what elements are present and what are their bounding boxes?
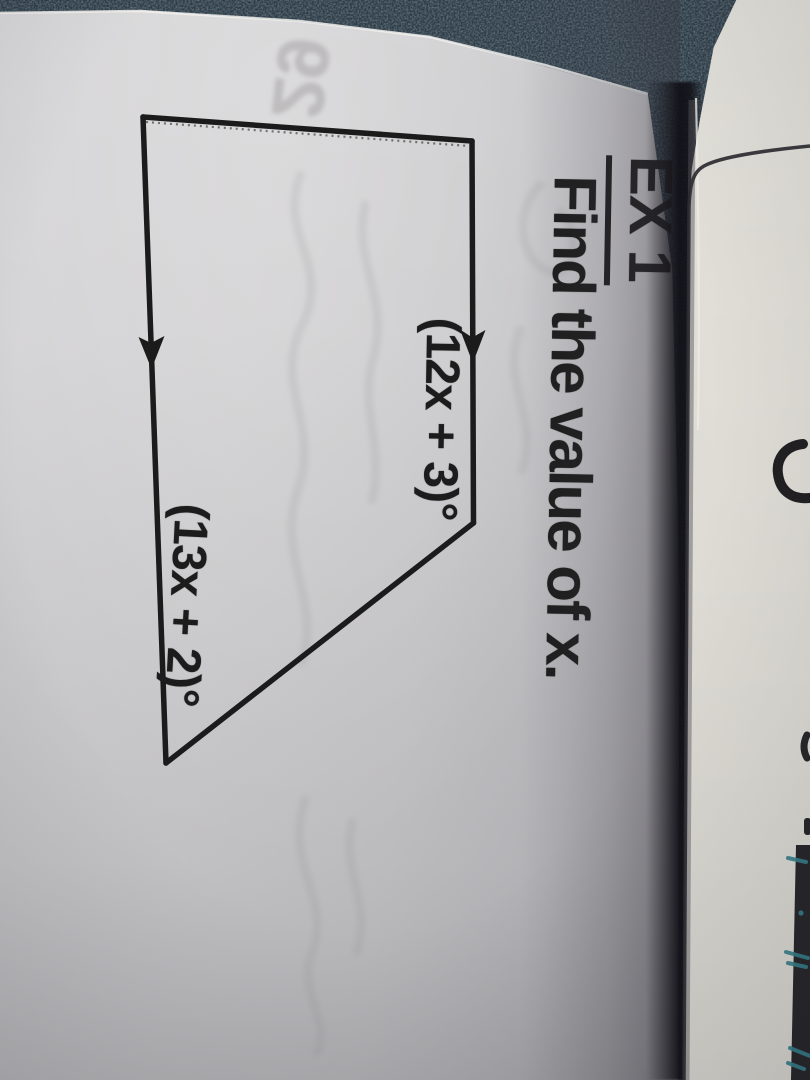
photo-of-notebook: 29 EX 1 Find the value of x. [0, 0, 810, 1080]
facing-page-edge-highlight [696, 98, 699, 430]
cutoff-glyph-sliver-2 [804, 818, 810, 835]
facing-page-margin-line [684, 146, 810, 1080]
cutoff-glyph-sliver-1 [804, 735, 807, 758]
facing-page-details [0, 0, 810, 1080]
cutoff-letter-glyph [778, 444, 810, 498]
